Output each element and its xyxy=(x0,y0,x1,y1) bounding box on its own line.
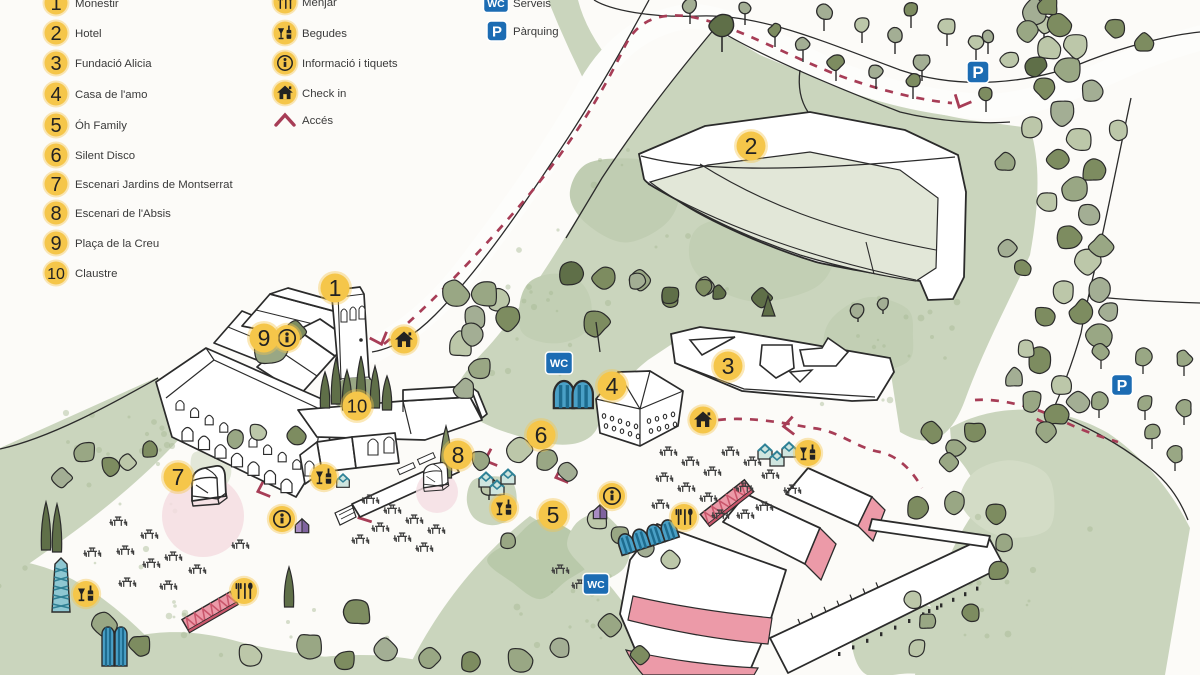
svg-text:2: 2 xyxy=(745,133,758,159)
svg-text:Informació i tiquets: Informació i tiquets xyxy=(302,58,398,70)
svg-text:Pàrquing: Pàrquing xyxy=(513,26,559,38)
svg-text:Plaça de la Creu: Plaça de la Creu xyxy=(75,238,159,250)
svg-text:WC: WC xyxy=(550,358,568,370)
svg-text:9: 9 xyxy=(50,233,61,255)
svg-text:Serveis: Serveis xyxy=(513,0,551,10)
svg-text:Begudes: Begudes xyxy=(302,28,347,40)
svg-text:3: 3 xyxy=(50,53,61,75)
svg-text:3: 3 xyxy=(722,353,735,379)
svg-text:Escenari Jardins de Montserrat: Escenari Jardins de Montserrat xyxy=(75,179,233,191)
svg-text:4: 4 xyxy=(606,373,619,399)
svg-text:4: 4 xyxy=(50,84,61,106)
svg-text:1: 1 xyxy=(329,275,342,301)
svg-text:Casa de l'amo: Casa de l'amo xyxy=(75,89,147,101)
svg-text:10: 10 xyxy=(347,396,368,417)
svg-text:Silent Disco: Silent Disco xyxy=(75,150,135,162)
svg-text:Escenari de l'Absis: Escenari de l'Absis xyxy=(75,208,171,220)
svg-text:8: 8 xyxy=(452,442,465,468)
svg-text:7: 7 xyxy=(172,464,185,490)
svg-text:8: 8 xyxy=(50,203,61,225)
svg-text:Menjar: Menjar xyxy=(302,0,337,9)
svg-text:Fundació Alicia: Fundació Alicia xyxy=(75,58,152,70)
svg-text:6: 6 xyxy=(535,422,548,448)
svg-text:P: P xyxy=(972,63,983,82)
svg-text:2: 2 xyxy=(50,23,61,45)
svg-text:5: 5 xyxy=(547,502,560,528)
svg-text:1: 1 xyxy=(50,0,61,15)
svg-text:Monestir: Monestir xyxy=(75,0,119,10)
svg-text:P: P xyxy=(492,23,502,40)
svg-text:WC: WC xyxy=(487,0,505,10)
svg-text:Accés: Accés xyxy=(302,115,333,127)
svg-text:7: 7 xyxy=(50,174,61,196)
svg-text:5: 5 xyxy=(50,115,61,137)
svg-text:9: 9 xyxy=(258,325,271,351)
svg-text:Óh Family: Óh Family xyxy=(75,119,127,132)
svg-text:Check in: Check in xyxy=(302,88,346,100)
svg-text:Claustre: Claustre xyxy=(75,268,117,280)
svg-text:P: P xyxy=(1117,378,1128,395)
svg-text:10: 10 xyxy=(47,266,65,283)
svg-text:6: 6 xyxy=(50,145,61,167)
svg-text:Hotel: Hotel xyxy=(75,28,102,40)
svg-text:WC: WC xyxy=(587,579,605,591)
